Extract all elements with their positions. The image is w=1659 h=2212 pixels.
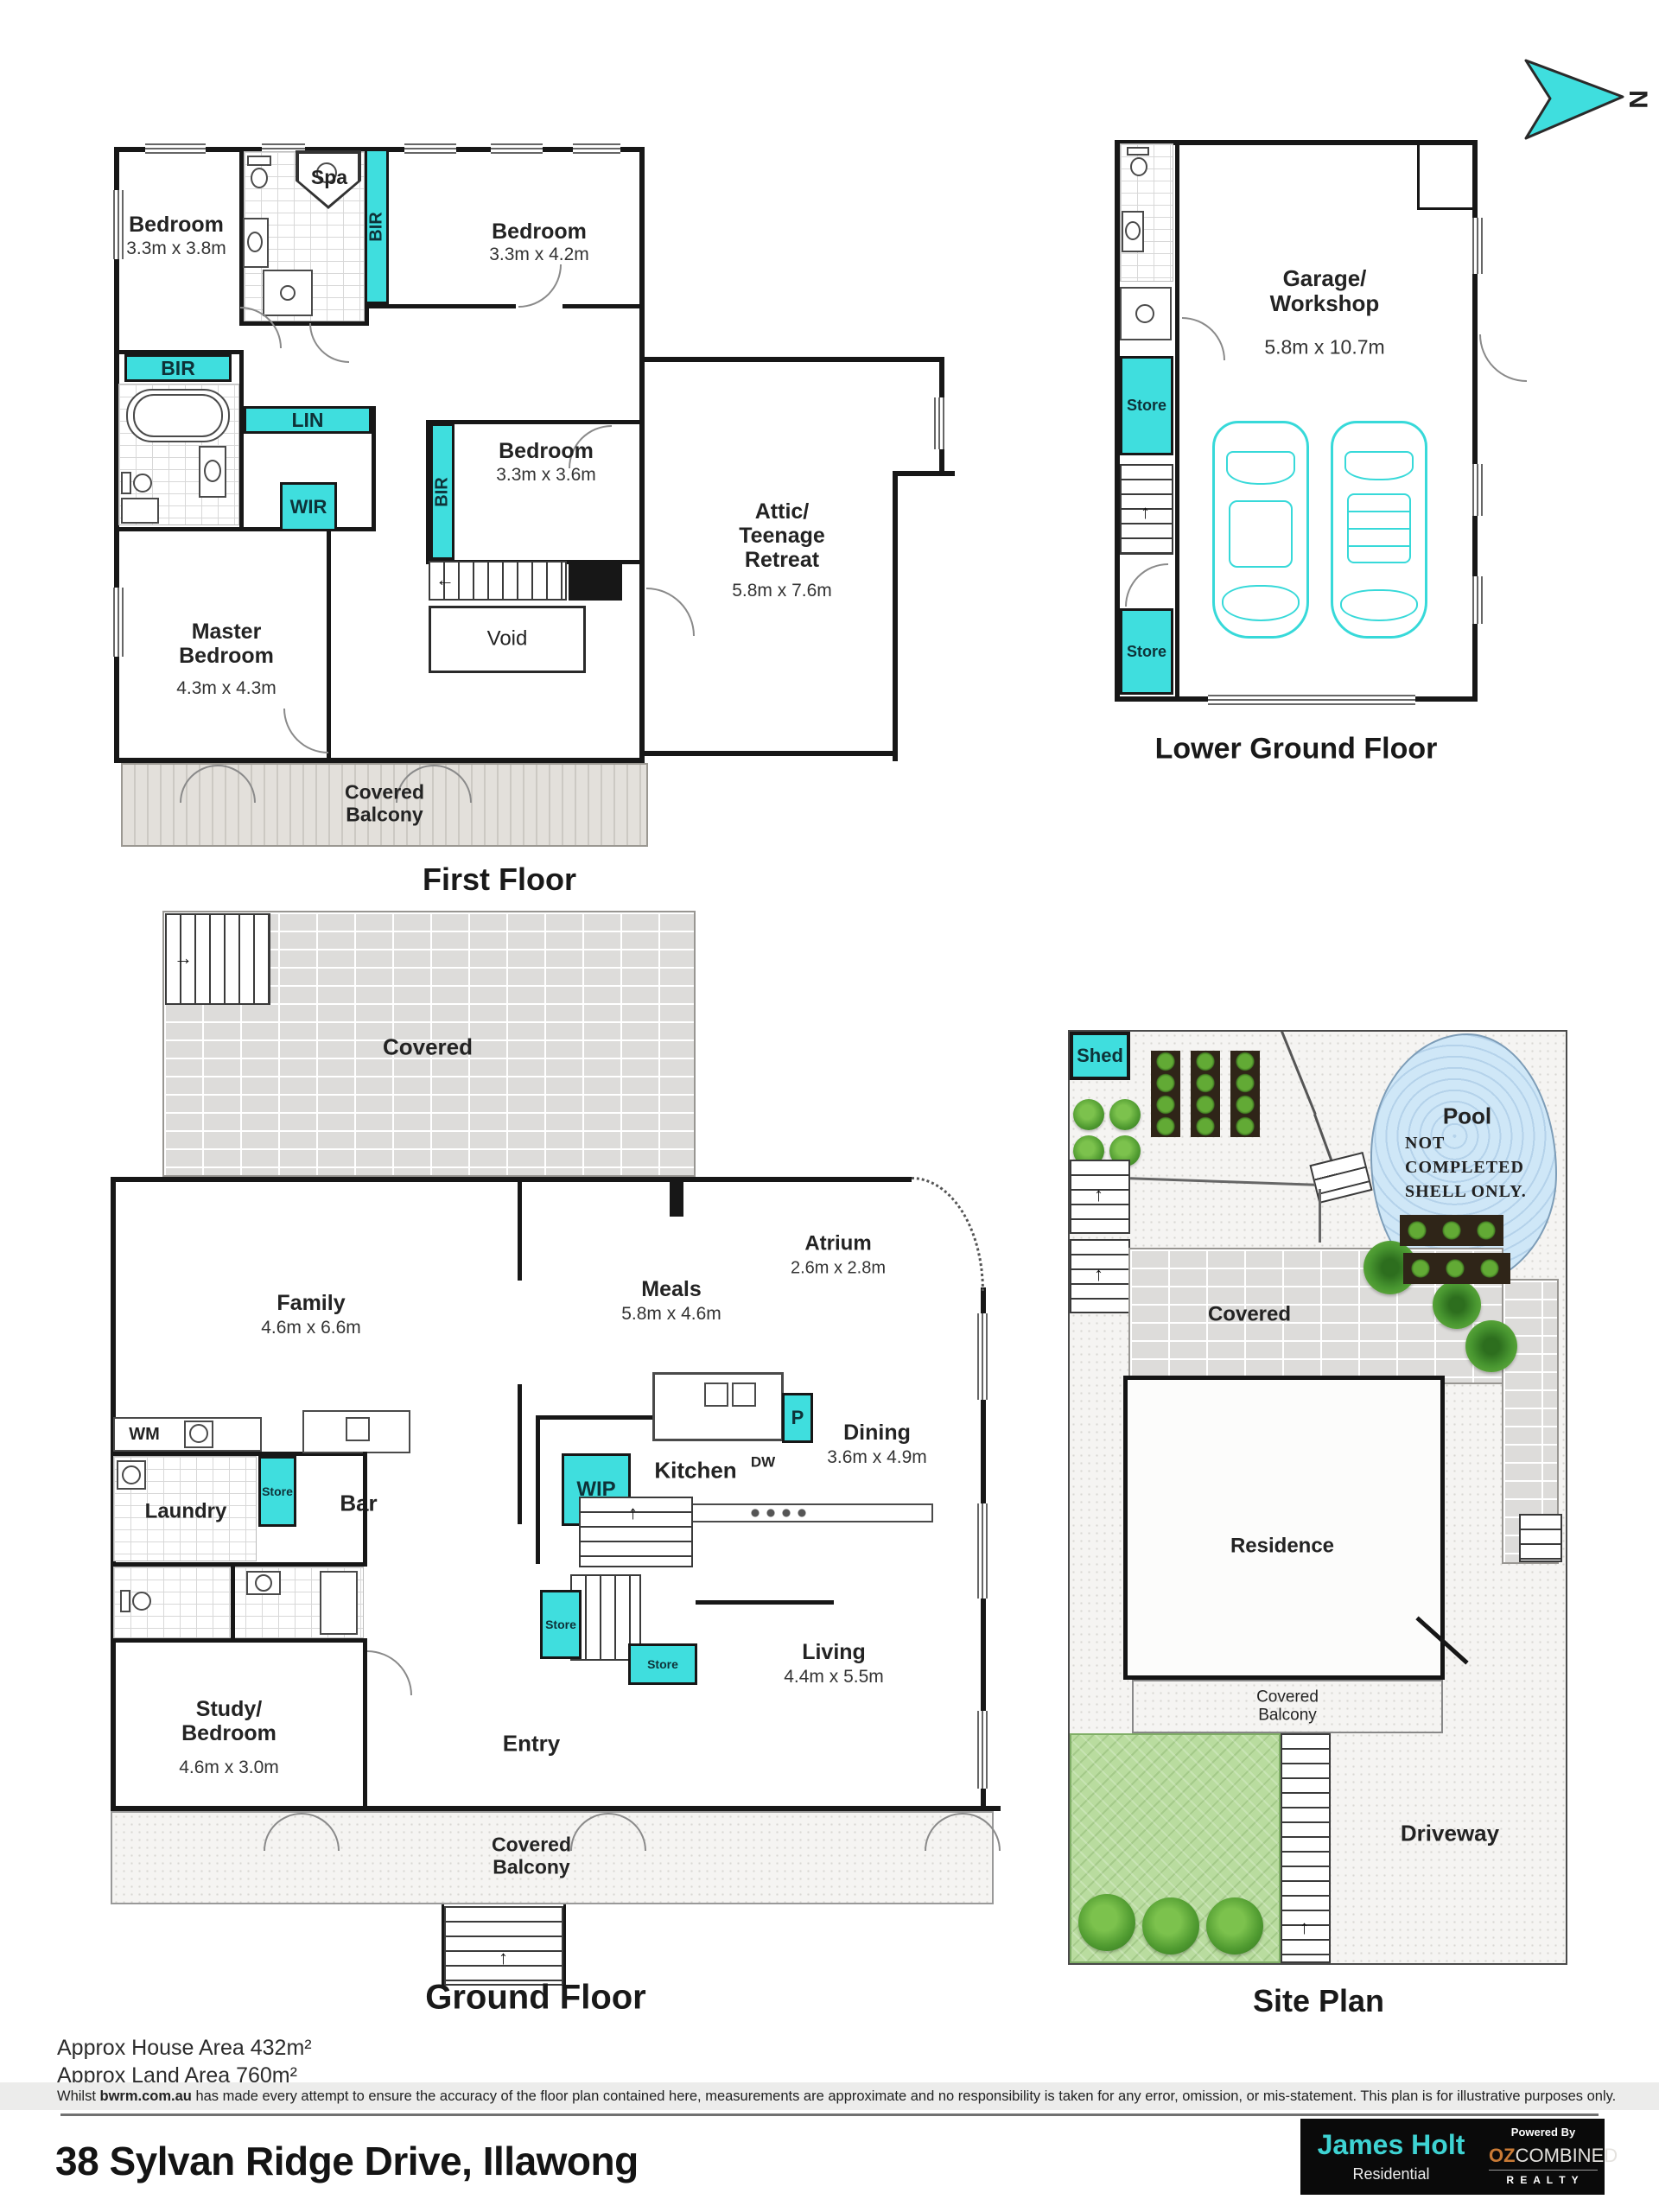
shower-drain: [1135, 304, 1154, 323]
store-room: Store: [1120, 608, 1173, 695]
toilet-tank: [1127, 147, 1149, 156]
ground-floor-plan: → Covered WM Store Laundry Bar WIP DW Ki…: [99, 899, 1084, 2056]
car-roof-rack: [1347, 493, 1411, 563]
master-bedroom-label: Master Bedroom: [170, 620, 283, 668]
window: [404, 143, 456, 154]
tree: [1142, 1897, 1199, 1955]
pantry: P: [782, 1393, 813, 1443]
window: [113, 588, 124, 657]
store-room: Store: [258, 1456, 296, 1527]
window: [934, 397, 944, 449]
store-label: Store: [262, 1484, 293, 1498]
car-hood: [1340, 589, 1417, 621]
study-dims: 4.6m x 3.0m: [179, 1758, 279, 1778]
lower-ground-floor-plan: Store ↑ Store Garage/ Workshop 5.8m x 10…: [1104, 131, 1623, 823]
window: [113, 190, 124, 259]
atrium-glass-curve: [912, 1177, 984, 1291]
north-label: N: [1623, 90, 1652, 109]
toilet-tank: [247, 156, 271, 166]
pool-note-line: COMPLETED: [1405, 1158, 1524, 1178]
vanity-basin: [255, 1574, 272, 1592]
store-room: Store: [540, 1590, 582, 1659]
atrium-dims: 2.6m x 2.8m: [791, 1259, 886, 1279]
realty-text: R E A L T Y: [1482, 2174, 1605, 2186]
living-label: Living: [802, 1640, 866, 1664]
bedroom2-label: Bedroom: [492, 219, 587, 244]
attic-label: Attic/ Teenage Retreat: [717, 499, 847, 572]
store-label: Store: [1127, 397, 1166, 415]
bedroom1-label: Bedroom: [129, 213, 224, 237]
door-arc: [1479, 334, 1527, 382]
palm-tree: [1433, 1281, 1481, 1329]
window: [491, 143, 543, 154]
wall: [563, 304, 645, 308]
covered-label: Covered: [383, 1034, 473, 1059]
tree: [1206, 1897, 1263, 1955]
car-windshield: [1344, 451, 1414, 480]
garden-bed: [1230, 1051, 1260, 1137]
bir-label: BIR: [433, 477, 453, 506]
garage-notch-wall: [1417, 140, 1420, 209]
stair-direction-arrow: →: [174, 949, 193, 968]
house-area-text: Approx House Area 432m²: [57, 2036, 312, 2061]
dw-label: DW: [751, 1453, 775, 1470]
master-bedroom-dims: 4.3m x 4.3m: [176, 678, 276, 699]
wir-label: WIR: [290, 496, 327, 518]
dining-label: Dining: [843, 1421, 911, 1445]
stair-direction-arrow: ←: [435, 570, 454, 589]
stair-direction-arrow: ↑: [1094, 1185, 1103, 1205]
store-label: Store: [1127, 643, 1166, 661]
car-outline: [1331, 421, 1427, 639]
shed: Shed: [1070, 1032, 1130, 1080]
residence-outline: [1123, 1376, 1445, 1680]
stairs: [1519, 1514, 1562, 1562]
garden-bed: [1151, 1051, 1180, 1137]
pantry-label: P: [791, 1407, 804, 1429]
car-windshield: [1226, 451, 1296, 485]
bedroom3-dims: 3.3m x 3.6m: [496, 465, 596, 486]
toilet-bowl: [132, 1592, 151, 1611]
entry-label: Entry: [503, 1731, 560, 1756]
pool-note-line: NOT: [1405, 1134, 1445, 1154]
family-label: Family: [276, 1291, 345, 1315]
bedroom1-dims: 3.3m x 3.8m: [126, 238, 226, 259]
shed-label: Shed: [1077, 1045, 1123, 1067]
atrium-label: Atrium: [804, 1233, 871, 1256]
stair-direction-arrow: ↑: [1094, 1265, 1103, 1284]
wall: [111, 1177, 912, 1182]
floorplan-sheet: { "north": {"label": "N"}, "first_floor"…: [0, 0, 1659, 2212]
walk-in-robe: WIR: [280, 482, 337, 531]
shower-drain: [280, 285, 296, 301]
oz-combined-logo: OZCOMBINED: [1489, 2145, 1598, 2171]
driveway-label: Driveway: [1401, 1821, 1499, 1846]
powered-by-label: Powered By: [1482, 2126, 1605, 2139]
stair-direction-arrow: ↑: [1141, 503, 1150, 522]
bedroom2-dims: 3.3m x 4.2m: [489, 245, 589, 265]
door-arc: [367, 1650, 412, 1695]
brand-sub: Residential: [1300, 2165, 1482, 2183]
disclaimer-text: Whilst bwrm.com.au has made every attemp…: [57, 2082, 1616, 2110]
spa-label: Spa: [311, 167, 347, 189]
garage-notch-wall: [1417, 207, 1478, 210]
store-room: Store: [1120, 356, 1173, 455]
garage-dims: 5.8m x 10.7m: [1264, 336, 1384, 359]
wall: [518, 1384, 522, 1524]
oz-text: OZ: [1489, 2145, 1516, 2166]
pool-label: Pool: [1443, 1103, 1491, 1128]
toilet-bowl: [251, 168, 268, 188]
living-dims: 4.4m x 5.5m: [784, 1667, 884, 1688]
lin-label: LIN: [291, 409, 323, 432]
attic-notch: [893, 471, 955, 761]
family-dims: 4.6m x 6.6m: [261, 1318, 361, 1338]
bir-label: BIR: [367, 212, 387, 241]
wall: [536, 1415, 540, 1564]
stair-direction-arrow: ↑: [499, 1948, 508, 1967]
meals-dims: 5.8m x 4.6m: [621, 1304, 721, 1325]
bush: [1109, 1099, 1141, 1130]
retaining-wall: [1319, 1189, 1321, 1243]
meals-label: Meals: [641, 1277, 701, 1301]
attic-dims: 5.8m x 7.6m: [732, 581, 832, 601]
car-hood: [1222, 585, 1299, 621]
store-room: Store: [628, 1643, 697, 1685]
site-plan-title: Site Plan: [1253, 1983, 1384, 2019]
lower-ground-title: Lower Ground Floor: [1155, 733, 1438, 766]
covered-label: Covered: [1208, 1304, 1291, 1327]
tree: [1078, 1894, 1135, 1951]
agency-logo: James Holt Residential Powered By OZCOMB…: [1300, 2119, 1605, 2195]
wall: [696, 1600, 834, 1605]
laundry-label: Laundry: [145, 1501, 227, 1524]
pool-note-line: SHELL ONLY.: [1405, 1182, 1527, 1202]
study-label: Study/ Bedroom: [173, 1697, 285, 1745]
wall: [1175, 140, 1179, 702]
ground-floor-title: Ground Floor: [425, 1979, 646, 2018]
window: [1472, 576, 1483, 624]
stair-direction-arrow: ↑: [1300, 1918, 1309, 1937]
wall: [670, 1177, 683, 1217]
combined-text: COMBINED: [1516, 2145, 1618, 2166]
wm-label: WM: [129, 1425, 160, 1444]
built-in-robe: BIR: [430, 423, 454, 560]
wall: [114, 527, 244, 531]
balcony-label: Covered Balcony: [331, 781, 438, 826]
address-title: 38 Sylvan Ridge Drive, Illawong: [55, 2138, 639, 2184]
window: [1472, 218, 1483, 274]
built-in-robe: BIR: [124, 354, 232, 382]
void-label: Void: [487, 628, 528, 652]
shower: [121, 498, 159, 524]
linen-closet: LIN: [244, 406, 372, 434]
vanity-basin: [247, 232, 263, 252]
divider-rule: [60, 2113, 1599, 2116]
wall: [239, 350, 244, 531]
site-balcony-label: Covered Balcony: [1236, 1688, 1339, 1726]
porch-wall: [563, 1904, 566, 1987]
toilet-tank: [121, 472, 131, 494]
dining-dims: 3.6m x 4.9m: [827, 1447, 927, 1468]
window: [977, 1503, 988, 1599]
car-roof: [1229, 500, 1293, 569]
bush: [1073, 1099, 1104, 1130]
porch-steps: [444, 1906, 563, 1986]
wall: [111, 1638, 367, 1643]
kitchen-sink: [732, 1382, 756, 1407]
window: [573, 143, 620, 154]
kitchen-sink: [704, 1382, 728, 1407]
vanity-basin: [204, 460, 221, 482]
window: [1472, 464, 1483, 516]
bath-tub-inner: [133, 394, 223, 437]
toilet-tank: [120, 1590, 130, 1612]
vanity-basin: [1125, 221, 1141, 240]
built-in-robe: BIR: [365, 149, 389, 304]
window: [977, 1711, 988, 1789]
garage-door: [1208, 695, 1415, 705]
garden-bed: [1191, 1051, 1220, 1137]
first-floor-plan: BIR BIR LIN WIR BIR ← Void Covered Balco…: [111, 138, 983, 916]
washing-machine-door: [189, 1424, 208, 1443]
palm-tree: [1465, 1320, 1517, 1372]
bir-label: BIR: [161, 357, 195, 380]
wall: [231, 1566, 235, 1638]
disclaimer-rest: has made every attempt to ensure the acc…: [192, 2088, 1616, 2104]
kitchen-label: Kitchen: [654, 1458, 736, 1483]
disclaimer-prefix: Whilst: [57, 2088, 100, 2104]
garden-bed: [1400, 1215, 1503, 1246]
wall: [426, 420, 645, 424]
stove: [747, 1505, 810, 1521]
garage-label: Garage/ Workshop: [1255, 266, 1394, 316]
laundry-tub-basin: [122, 1465, 141, 1484]
stair-direction-arrow: ↑: [628, 1503, 638, 1522]
toilet-bowl: [1130, 157, 1147, 176]
site-plan: Shed Pool NOT COMPLETED SHELL ONLY. ↑ ↑ …: [1059, 1020, 1621, 2048]
wall: [372, 406, 376, 531]
stair-landing-block: [569, 561, 622, 601]
disclaimer-bar: Whilst bwrm.com.au has made every attemp…: [0, 2082, 1659, 2110]
store-label: Store: [647, 1657, 678, 1671]
wall: [369, 304, 516, 308]
window: [145, 143, 206, 154]
car-outline: [1212, 421, 1309, 639]
wall: [363, 1452, 367, 1566]
door-arc: [963, 1813, 1001, 1851]
bedroom3-label: Bedroom: [499, 439, 594, 463]
shower: [320, 1571, 358, 1635]
garden-bed: [1403, 1253, 1510, 1284]
disclaimer-site: bwrm.com.au: [100, 2088, 192, 2104]
bar-label: Bar: [340, 1491, 377, 1516]
brand-name: James Holt: [1300, 2129, 1482, 2161]
window: [977, 1313, 988, 1400]
bar-sink: [346, 1417, 370, 1441]
residence-label: Residence: [1230, 1535, 1334, 1559]
first-floor-title: First Floor: [423, 861, 576, 898]
wall: [518, 1177, 522, 1281]
toilet-bowl: [133, 474, 152, 493]
store-label: Store: [545, 1618, 576, 1631]
